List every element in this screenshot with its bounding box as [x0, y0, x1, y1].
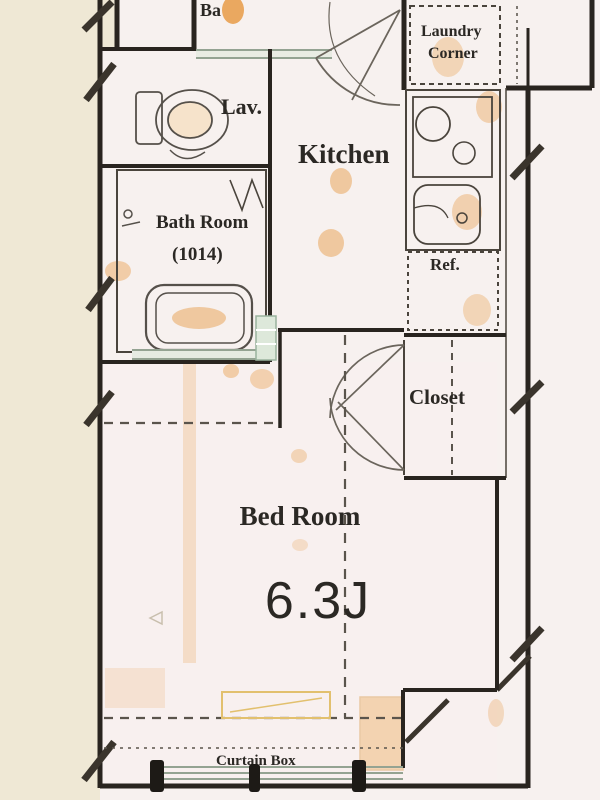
bedroom-label: Bed Room	[240, 501, 361, 531]
floor-plan: Ba Lav. Bath Room (10	[0, 0, 600, 800]
bath-room-label: Bath Room	[156, 212, 249, 233]
kitchen-counter-end-panel	[256, 316, 276, 360]
laundry-label-line1: Laundry	[421, 23, 481, 40]
floor-plan-drawing: Ba Lav. Bath Room (10	[0, 0, 600, 800]
lav-label: Lav.	[221, 94, 262, 119]
bath-size-label: (1014)	[172, 244, 223, 265]
laundry-label-line2: Corner	[428, 45, 478, 62]
bath-window-band	[132, 350, 266, 359]
stain-bottom-right	[360, 697, 403, 770]
entrance-step-edge	[196, 50, 332, 58]
partial-top-label: Ba	[200, 0, 221, 20]
closet-label: Closet	[409, 385, 465, 409]
ref-label: Ref.	[430, 255, 460, 274]
outside-left-strip	[0, 0, 100, 800]
bedroom-size-label: 6.3J	[265, 572, 371, 630]
kitchen-label: Kitchen	[298, 139, 390, 169]
